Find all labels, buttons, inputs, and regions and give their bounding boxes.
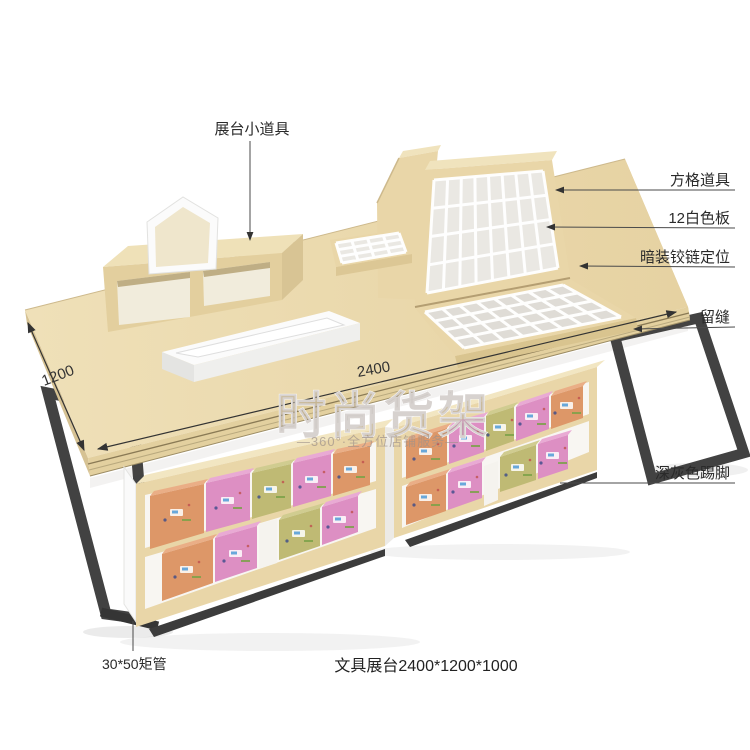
callout-label: 展台小道具 [214,121,289,138]
callout-prop-top: 展台小道具 [214,121,289,240]
callout-label: 12白色板 [668,209,730,227]
product-caption: 文具展台2400*1200*1000 [334,657,517,675]
house-prop [147,197,218,274]
product-diagram: 1200 2400 展台小道具 方格道具 12白色板 暗装铰链定位 留缝 深灰色… [0,0,750,750]
callout-label: 暗装铰链定位 [640,248,730,266]
callout-label: 30*50矩管 [102,656,167,672]
illustration-canvas: 1200 2400 展台小道具 方格道具 12白色板 暗装铰链定位 留缝 深灰色… [0,0,750,750]
center-divider [259,519,277,569]
center-divider [484,461,498,506]
callout-label: 深灰色踢脚 [655,465,730,482]
callout-label: 方格道具 [670,172,730,189]
watermark-sub: —360°·全方位店铺服务— [297,434,459,449]
callout-label: 留缝 [700,309,730,326]
watermark: 时尚货架 —360°·全方位店铺服务— [276,388,492,449]
cabinet-side-panel [124,467,136,622]
